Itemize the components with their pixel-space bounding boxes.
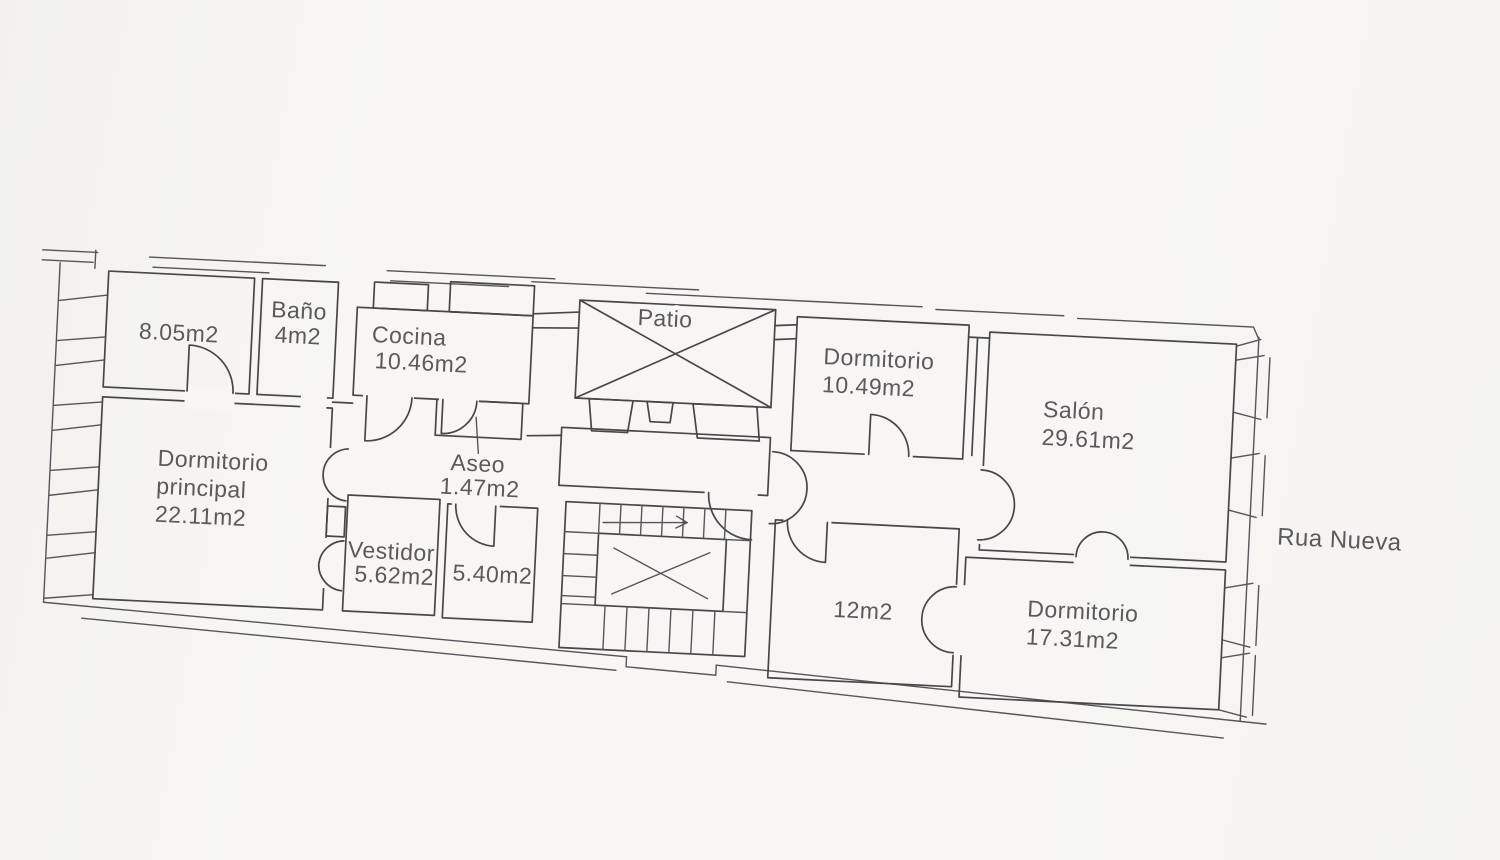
street-label: Rua Nueva <box>1277 523 1403 556</box>
left-facade-wall <box>44 263 110 605</box>
door-arc-cocina <box>365 396 412 443</box>
door-opening <box>300 393 327 414</box>
cocina-closet-right <box>449 282 534 316</box>
room-dormitorio-principal-label: Dormitorio <box>157 445 269 476</box>
stair-outer <box>559 502 752 657</box>
door-arc-room540 <box>454 504 496 546</box>
room-cocina-label: Cocina <box>371 321 447 351</box>
door-opening <box>1074 551 1131 570</box>
room-patio-label: Patio <box>637 304 693 333</box>
door-opening <box>705 488 758 499</box>
room-salon-label: Salón <box>1043 396 1106 425</box>
corridor-wall-stub <box>326 506 345 537</box>
door-arc-room12-top <box>785 520 827 562</box>
room-dormitorio-1731-area: 17.31m2 <box>1025 623 1119 654</box>
door-arc-dormitorio-1049 <box>869 414 911 456</box>
room-805-area: 8.05m2 <box>138 318 219 348</box>
door-opening <box>452 500 500 510</box>
door-opening <box>184 385 235 411</box>
patio-light-shafts <box>587 399 760 441</box>
scanned-floorplan-page: 8.05m2 Baño 4m2 Cocina 10.46m2 Patio Dor… <box>0 0 1500 860</box>
staircase <box>559 502 752 657</box>
room-dormitorio-1049-label: Dormitorio <box>823 343 935 374</box>
room-dormitorio-1049-area: 10.49m2 <box>821 371 915 402</box>
aseo-leader-line <box>474 417 480 453</box>
room-540-area: 5.40m2 <box>452 559 533 589</box>
stair-treads <box>559 502 752 657</box>
room-dormitorio-principal-area: 22.11m2 <box>154 501 246 531</box>
door-opening <box>439 395 479 405</box>
room-bano-label: Baño <box>271 296 328 325</box>
floor-plan-canvas: 8.05m2 Baño 4m2 Cocina 10.46m2 Patio Dor… <box>0 0 1500 860</box>
room-bano-area: 4m2 <box>274 321 321 349</box>
doors <box>176 345 1136 661</box>
hall-distribuidor <box>559 427 771 495</box>
room-12-area: 12m2 <box>833 596 894 625</box>
stair-cross-icon <box>612 548 710 599</box>
door-arc-hall-double <box>769 452 808 526</box>
floor-plan: 8.05m2 Baño 4m2 Cocina 10.46m2 Patio Dor… <box>22 248 1413 746</box>
door-opening <box>363 392 414 402</box>
right-facade-wall <box>1218 336 1271 721</box>
room-cocina-area: 10.46m2 <box>374 347 468 378</box>
room-dormitorio-1731-label: Dormitorio <box>1027 595 1139 626</box>
room-aseo-area: 1.47m2 <box>439 472 520 502</box>
door-arc-hall-stairs <box>706 493 753 540</box>
door-opening <box>948 585 969 656</box>
door-opening <box>974 466 990 544</box>
door-opening <box>865 450 913 460</box>
cocina-closet-left <box>373 282 428 311</box>
stair-inner-void <box>595 533 726 611</box>
stairs-direction-arrow-icon <box>603 513 687 529</box>
room-dormitorio-principal-label2: principal <box>156 473 247 503</box>
room-vestidor-area: 5.62m2 <box>354 560 435 590</box>
room-salon-area: 29.61m2 <box>1041 424 1135 455</box>
